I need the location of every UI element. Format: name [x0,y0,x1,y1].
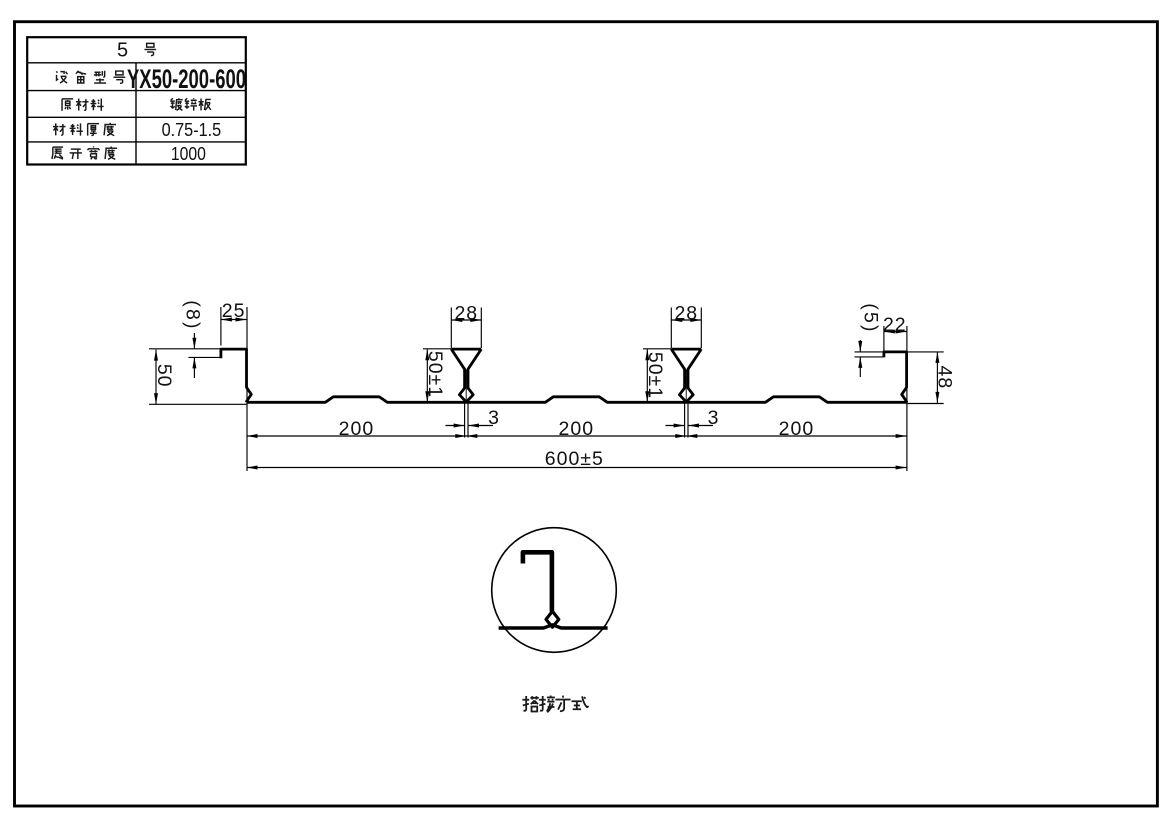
svg-text:3: 3 [708,407,720,429]
svg-text:5: 5 [117,40,128,62]
svg-text:YX50-200-600: YX50-200-600 [127,64,246,94]
svg-text:25: 25 [222,300,246,322]
svg-text:600±5: 600±5 [545,448,604,470]
svg-text:50±1: 50±1 [424,351,446,398]
svg-text:28: 28 [674,302,698,324]
svg-text:50: 50 [153,364,175,388]
svg-text:(8): (8) [182,300,204,330]
svg-text:50±1: 50±1 [644,352,666,399]
svg-text:28: 28 [454,302,478,324]
svg-text:0.75-1.5: 0.75-1.5 [162,119,222,140]
svg-text:22: 22 [883,314,907,336]
svg-text:48: 48 [933,366,955,390]
svg-text:3: 3 [488,407,500,429]
svg-text:200: 200 [779,418,815,440]
svg-text:200: 200 [559,418,595,440]
svg-text:1000: 1000 [171,143,206,164]
svg-text:200: 200 [339,418,375,440]
svg-text:(5): (5) [859,303,881,333]
